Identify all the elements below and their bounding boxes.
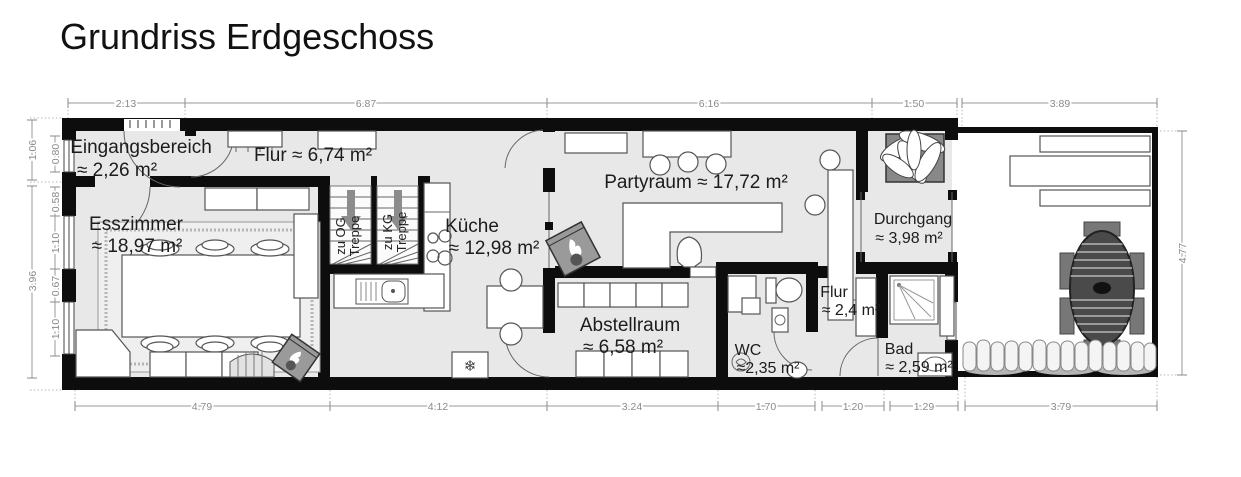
svg-text:3.24: 3.24	[622, 401, 643, 413]
label-wc-area: ≈2,35 m²	[736, 360, 800, 377]
dim-top: 2.13 6.87 6.16 1.50 3.89	[68, 98, 1157, 110]
abstellraum-door-leaf	[690, 267, 716, 277]
terrace-bench-3	[1040, 190, 1150, 206]
svg-text:3.96: 3.96	[27, 271, 39, 292]
shower-icon	[890, 276, 938, 324]
svg-text:1.50: 1.50	[904, 98, 925, 110]
dim-right: 4.77	[1177, 131, 1189, 375]
label-bad-area: ≈ 2,59 m²	[885, 359, 953, 376]
sink-icon	[356, 279, 408, 304]
svg-text:4.77: 4.77	[1177, 243, 1189, 264]
label-abstellraum-area: ≈ 6,58 m²	[583, 337, 663, 358]
label-kueche: Küche	[445, 216, 499, 237]
label-durchgang: Durchgang	[874, 211, 952, 228]
svg-text:0.58: 0.58	[50, 192, 62, 213]
toilet-icon	[776, 278, 802, 302]
dining-table	[122, 255, 300, 337]
label-flur-klein: Flur	[820, 284, 848, 301]
svg-text:3.89: 3.89	[1050, 98, 1071, 110]
durchgang-furniture	[877, 126, 947, 187]
label-eingangsbereich-area: ≈ 2,26 m²	[77, 160, 157, 181]
snowflake-icon: ❄	[464, 358, 477, 375]
stair-label-treppe-og-2: zu OG	[333, 217, 348, 255]
dim-bottom: 4.79 4.12 3.24 1.70 1.20 1.29 3.79	[75, 401, 1157, 413]
svg-text:1.06: 1.06	[27, 140, 39, 161]
svg-text:4.79: 4.79	[192, 401, 213, 413]
svg-text:0.67: 0.67	[50, 276, 62, 297]
svg-text:3.79: 3.79	[1051, 401, 1072, 413]
stair-label-treppe-kg-1: Treppe	[394, 212, 409, 253]
label-abstellraum: Abstellraum	[580, 315, 680, 336]
terrace-bench-2	[1010, 156, 1150, 186]
stair-label-treppe-og-1: Treppe	[347, 216, 362, 257]
kitchen-table	[487, 286, 543, 328]
svg-text:1.10: 1.10	[50, 319, 62, 340]
svg-text:6.87: 6.87	[356, 98, 377, 110]
floorplan-drawing: Treppe zu OG Treppe zu KG	[0, 0, 1241, 477]
sideboard	[565, 133, 627, 153]
label-esszimmer-area: ≈ 18,97 m²	[92, 236, 183, 257]
svg-text:1.29: 1.29	[914, 401, 935, 413]
label-kueche-area: ≈ 12,98 m²	[449, 238, 540, 259]
svg-text:2.13: 2.13	[116, 98, 137, 110]
label-bad: Bad	[885, 341, 913, 358]
tall-cabinet	[294, 214, 318, 298]
hedge	[963, 340, 1156, 375]
kitchen-chair-1	[500, 269, 522, 291]
label-esszimmer: Esszimmer	[89, 214, 184, 235]
toilet-tank	[766, 278, 776, 303]
floorplan-page: Grundriss Erdgeschoss	[0, 0, 1241, 477]
label-partyraum: Partyraum ≈ 17,72 m²	[604, 172, 788, 193]
stair-label-treppe-kg-2: zu KG	[380, 214, 395, 250]
dim-left: 1.06 3.96 0.80 0.58 1.10 0.67 1.10	[27, 120, 62, 378]
label-wc: WC	[735, 342, 762, 359]
label-flur: Flur ≈ 6,74 m²	[254, 145, 372, 166]
wc-sink	[772, 308, 788, 332]
svg-text:4.12: 4.12	[428, 401, 449, 413]
svg-text:1.20: 1.20	[843, 401, 864, 413]
svg-text:0.80: 0.80	[50, 144, 62, 165]
bad-cabinet	[940, 276, 954, 336]
label-durchgang-area: ≈ 3,98 m²	[875, 230, 943, 247]
kitchen-chair-2	[500, 323, 522, 345]
bell-lamp-icon	[677, 237, 701, 267]
svg-text:1.10: 1.10	[50, 233, 62, 254]
svg-text:1.70: 1.70	[756, 401, 777, 413]
terrace-bench-1	[1040, 136, 1150, 152]
svg-text:6.16: 6.16	[699, 98, 720, 110]
label-flur-klein-area: ≈ 2,4 m²	[822, 302, 881, 319]
label-eingangsbereich: Eingangsbereich	[70, 137, 212, 158]
windows	[64, 140, 74, 354]
